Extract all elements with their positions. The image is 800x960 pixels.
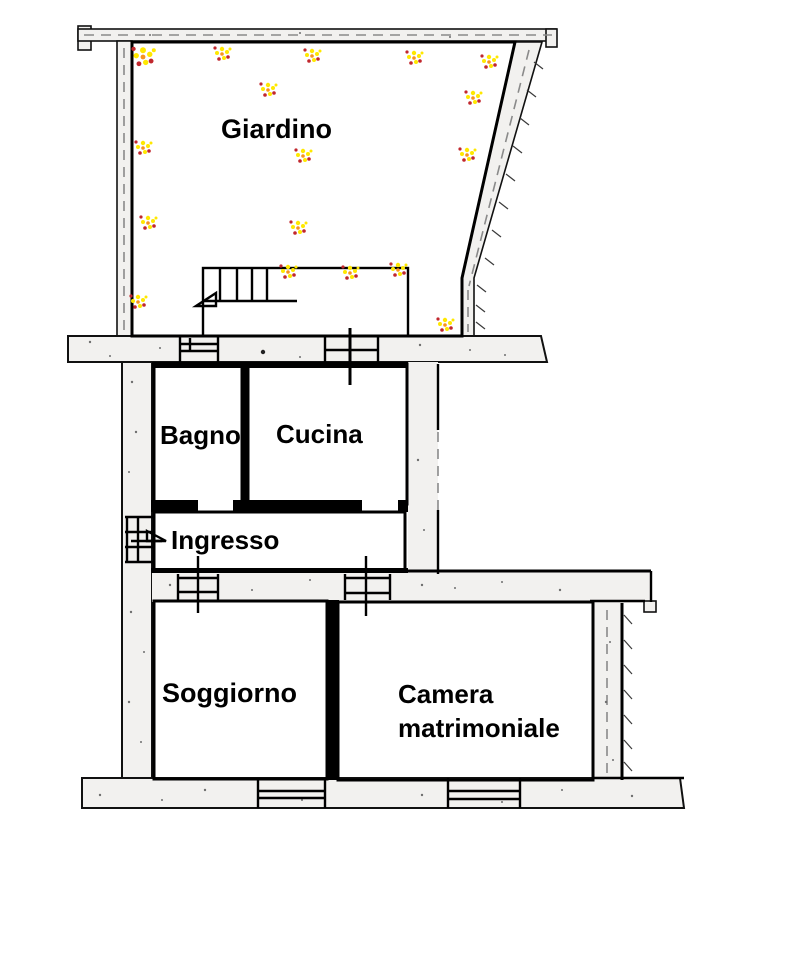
room-label-cucina: Cucina — [276, 419, 363, 449]
room-label-camera: Camera matrimoniale — [398, 677, 583, 745]
wall-right-band-notch — [644, 601, 656, 612]
room-label-giardino: Giardino — [221, 114, 332, 144]
garden-flowers — [129, 46, 498, 331]
wall-garden-right-slanted — [462, 42, 542, 336]
wall-right-band — [438, 572, 650, 603]
stairs-direction-arrow — [196, 293, 216, 306]
floor-plan-drawing — [0, 0, 800, 960]
wall-left — [122, 362, 152, 778]
wall-bottom-band — [82, 778, 684, 808]
room-label-ingresso: Ingresso — [171, 525, 279, 555]
floor-plan: Giardino Bagno Cucina Ingresso Soggiorno… — [0, 0, 800, 960]
wall-right-column — [408, 362, 438, 574]
door-opening-cucina — [362, 500, 398, 512]
wall-ingresso-bottom-border — [151, 568, 408, 573]
wall-hall-band — [152, 570, 438, 602]
wall-top-right-hook — [546, 29, 557, 47]
wall-middle-band — [68, 336, 547, 362]
garden-staircase — [196, 268, 408, 336]
wall-centerlines — [84, 35, 607, 774]
room-label-bagno: Bagno — [160, 420, 241, 450]
room-giardino — [132, 42, 515, 336]
room-label-soggiorno: Soggiorno — [162, 678, 297, 708]
door-opening-bagno — [198, 500, 233, 512]
